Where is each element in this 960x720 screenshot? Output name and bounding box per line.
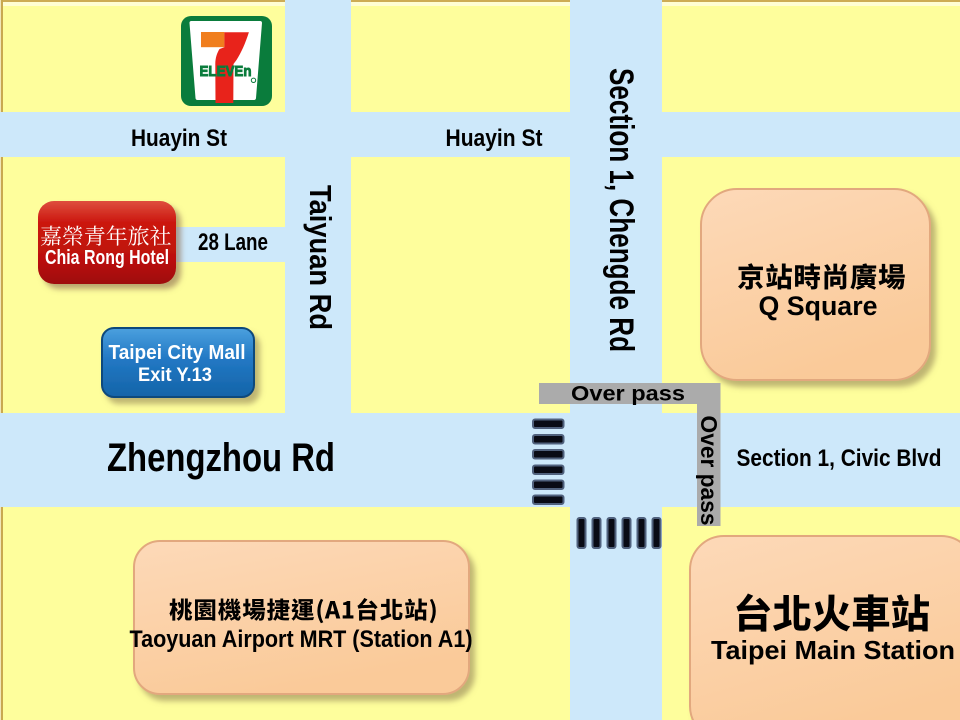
svg-text:Over pass: Over pass — [571, 383, 685, 406]
svg-text:Over pass: Over pass — [696, 416, 722, 526]
svg-text:Huayin St: Huayin St — [131, 125, 227, 152]
svg-text:Taipei City Mall: Taipei City Mall — [109, 342, 246, 364]
svg-text:ELEVEn: ELEVEn — [200, 63, 252, 80]
svg-text:Zhengzhou Rd: Zhengzhou Rd — [107, 436, 335, 480]
svg-text:Q Square: Q Square — [759, 291, 878, 321]
svg-text:Chia Rong Hotel: Chia Rong Hotel — [45, 247, 169, 269]
svg-text:Section 1, Chengde Rd: Section 1, Chengde Rd — [602, 68, 640, 352]
svg-text:Taoyuan Airport MRT (Station A: Taoyuan Airport MRT (Station A1) — [130, 626, 473, 653]
svg-text:Section 1, Civic Blvd: Section 1, Civic Blvd — [737, 445, 942, 472]
svg-text:Taiyuan Rd: Taiyuan Rd — [303, 185, 338, 330]
svg-text:Exit Y.13: Exit Y.13 — [138, 365, 212, 386]
svg-text:28 Lane: 28 Lane — [198, 229, 268, 256]
svg-text:Taipei Main Station: Taipei Main Station — [711, 635, 955, 665]
svg-text:Huayin St: Huayin St — [446, 125, 543, 152]
